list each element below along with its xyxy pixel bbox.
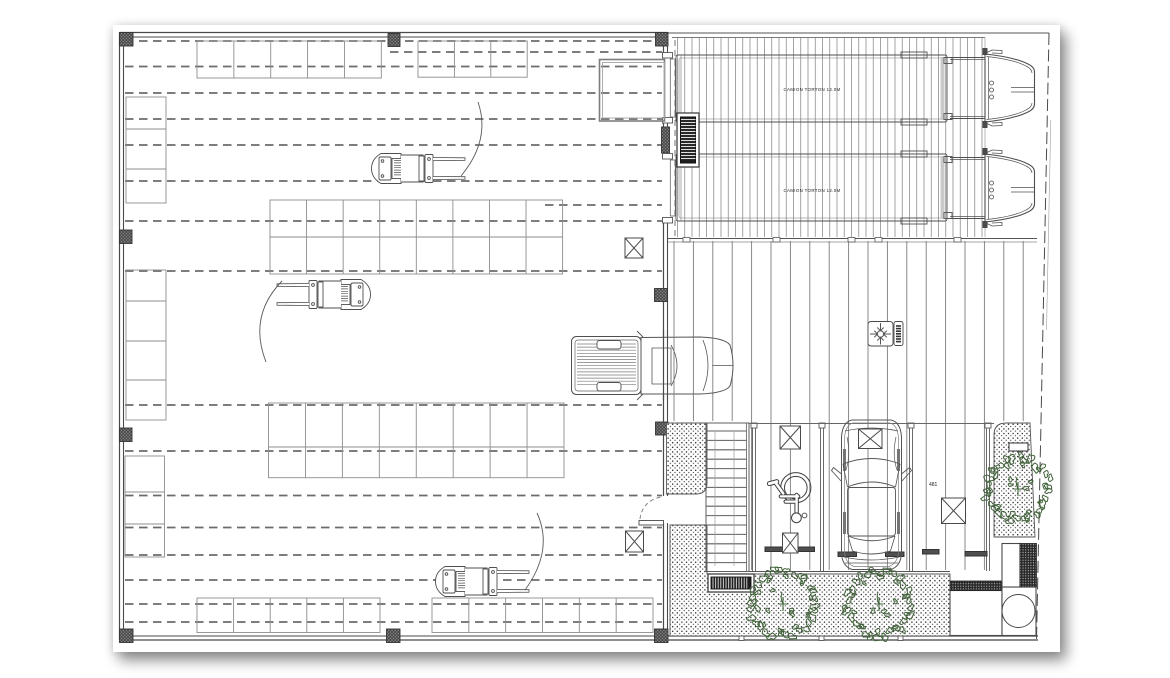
svg-text:481: 481 (929, 482, 938, 488)
svg-text:CAMION TORTON 12.0M: CAMION TORTON 12.0M (783, 188, 840, 193)
svg-text:CAMION TORTON 12.0M: CAMION TORTON 12.0M (783, 87, 840, 92)
